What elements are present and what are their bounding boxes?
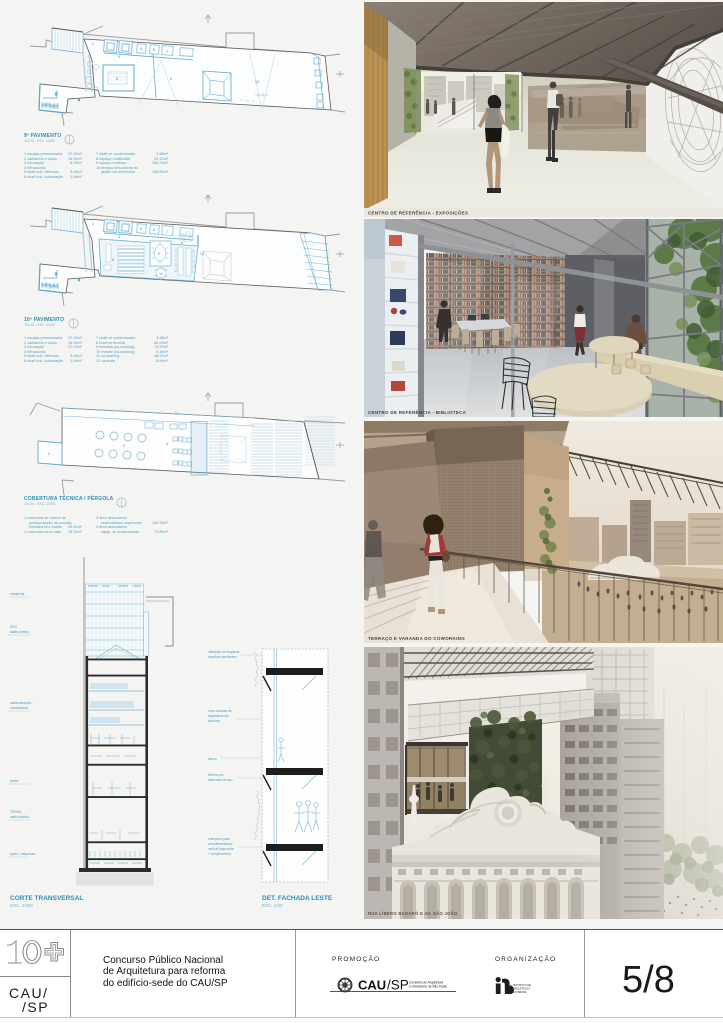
svg-text:1: 1 (175, 411, 177, 415)
svg-text:enforpeiro para: enforpeiro para (208, 837, 230, 841)
svg-text:+ complemento): + complemento) (208, 852, 231, 856)
svg-text:ESC. 1/50: ESC. 1/50 (262, 903, 283, 908)
svg-text:5: 5 (140, 47, 142, 51)
svg-text:6: 6 (153, 48, 155, 52)
svg-text:alumínio: alumínio (208, 719, 220, 723)
svg-text:ESC. 1/250: ESC. 1/250 (10, 903, 34, 908)
svg-text:12: 12 (200, 252, 204, 256)
svg-text:8: 8 (181, 241, 183, 245)
svg-text:nova moldura de: nova moldura de (208, 709, 232, 713)
svg-text:3: 3 (123, 444, 125, 448)
svg-text:9: 9 (158, 252, 160, 256)
svg-text:máquinas: máquinas (10, 592, 25, 596)
svg-text:banco: banco (208, 757, 217, 761)
svg-text:6: 6 (153, 228, 155, 232)
svg-text:floreira pré-: floreira pré- (208, 773, 224, 777)
svg-text:3: 3 (78, 278, 80, 282)
svg-text:4: 4 (166, 442, 168, 446)
svg-text:salão público: salão público (10, 630, 29, 634)
svg-text:CENTRO DE REFERÊNCIA - BIBLIOT: CENTRO DE REFERÊNCIA - BIBLIOTECA (368, 408, 467, 415)
svg-text:fabricada em aço: fabricada em aço (208, 778, 233, 782)
svg-text:9: 9 (170, 77, 172, 81)
svg-text:TERRAÇO E VARANDA DO COWORKING: TERRAÇO E VARANDA DO COWORKING (368, 636, 465, 641)
svg-text:4: 4 (118, 55, 120, 59)
svg-text:10: 10 (255, 80, 259, 84)
svg-text:espelhos pendentes: espelhos pendentes (208, 655, 237, 659)
svg-text:3: 3 (78, 98, 80, 102)
svg-text:CORTE TRANSVERSAL: CORTE TRANSVERSAL (10, 895, 83, 902)
svg-text:2: 2 (48, 452, 50, 456)
svg-text:apoio / máquinas: apoio / máquinas (10, 852, 35, 856)
svg-text:7: 7 (166, 50, 168, 54)
svg-text:pilotis: pilotis (10, 779, 19, 783)
svg-text:6: 6 (112, 258, 114, 262)
svg-text:1: 1 (92, 42, 94, 46)
svg-text:utilização de esquinas: utilização de esquinas (208, 650, 240, 654)
svg-text:e Urbanismo de São Paulo: e Urbanismo de São Paulo (409, 985, 447, 989)
svg-text:2: 2 (55, 92, 57, 96)
svg-text:10: 10 (159, 272, 163, 276)
svg-text:5: 5 (140, 227, 142, 231)
svg-text:INSTITUTO DE: INSTITUTO DE (513, 983, 531, 987)
svg-text:2: 2 (55, 272, 57, 276)
svg-text:CAU: CAU (358, 978, 386, 993)
svg-text:ARQUITETOS: ARQUITETOS (513, 987, 530, 991)
svg-text:/SP: /SP (387, 978, 409, 993)
svg-text:salão público: salão público (10, 815, 29, 819)
svg-text:CENTRO DE REFERÊNCIA - EXPOSIÇ: CENTRO DE REFERÊNCIA - EXPOSIÇÕES (368, 209, 468, 216)
svg-text:4: 4 (118, 235, 120, 239)
svg-text:1: 1 (92, 222, 94, 226)
svg-text:complementação: complementação (208, 842, 233, 846)
svg-text:vertical (viga solta: vertical (viga solta (208, 847, 234, 851)
svg-text:DO BRASIL: DO BRASIL (513, 990, 527, 994)
svg-text:CÉU: CÉU (10, 624, 18, 629)
svg-text:7: 7 (166, 230, 168, 234)
svg-text:8: 8 (116, 77, 118, 81)
svg-text:RUA LÍBERO BADARÓ E AV. SÃO JO: RUA LÍBERO BADARÓ E AV. SÃO JOÃO (368, 911, 458, 916)
svg-text:incubadoras: incubadoras (10, 706, 28, 710)
svg-text:DET. FACHADA LESTE: DET. FACHADA LESTE (262, 895, 333, 902)
svg-text:administração /: administração / (10, 701, 32, 705)
svg-text:esquadrias em: esquadrias em (208, 714, 229, 718)
svg-text:TERRA: TERRA (10, 810, 22, 814)
